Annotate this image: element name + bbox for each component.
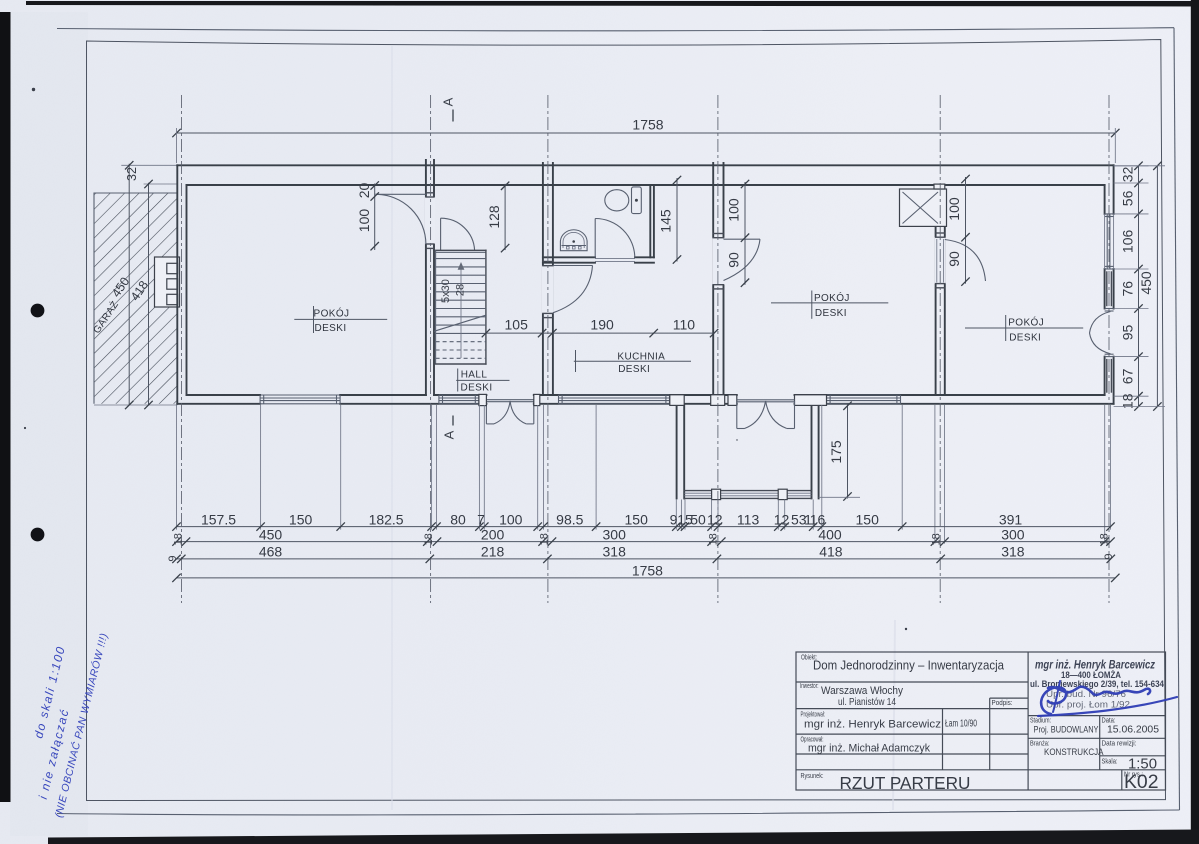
svg-text:5x30: 5x30 <box>440 279 452 303</box>
svg-text:mgr inż. Michał Adamczyk: mgr inż. Michał Adamczyk <box>808 743 930 755</box>
svg-text:50: 50 <box>690 511 706 527</box>
svg-text:Rysunek:: Rysunek: <box>801 771 824 780</box>
svg-text:28: 28 <box>455 284 467 296</box>
svg-text:POKÓJ: POKÓJ <box>814 291 850 304</box>
svg-text:12: 12 <box>707 511 723 527</box>
svg-text:DESKI: DESKI <box>314 323 346 334</box>
svg-text:12: 12 <box>774 511 790 527</box>
svg-text:Inwestor:: Inwestor: <box>800 681 819 690</box>
svg-text:90: 90 <box>726 252 742 268</box>
svg-text:100: 100 <box>726 198 742 222</box>
svg-text:1758: 1758 <box>632 117 663 133</box>
svg-text:9: 9 <box>1103 553 1115 559</box>
svg-text:200: 200 <box>481 526 505 542</box>
svg-text:400: 400 <box>818 526 842 542</box>
svg-text:32: 32 <box>125 167 139 181</box>
svg-text:150: 150 <box>856 511 880 527</box>
svg-text:Skala:: Skala: <box>1102 757 1118 766</box>
svg-text:18: 18 <box>538 533 550 545</box>
svg-text:67: 67 <box>1119 368 1135 384</box>
svg-text:300: 300 <box>603 526 627 542</box>
svg-text:A: A <box>442 430 457 439</box>
svg-text:450: 450 <box>1138 271 1154 295</box>
svg-text:150: 150 <box>625 511 649 527</box>
svg-text:DESKI: DESKI <box>815 308 847 319</box>
svg-text:RZUT PARTERU: RZUT PARTERU <box>840 773 971 793</box>
svg-text:DESKI: DESKI <box>460 383 492 394</box>
svg-text:KONSTRUKCJA: KONSTRUKCJA <box>1044 747 1104 758</box>
svg-text:Dom Jednorodzinny – Inwentaryz: Dom Jednorodzinny – Inwentaryzacja <box>813 658 1005 673</box>
svg-text:100: 100 <box>356 209 372 233</box>
svg-text:106: 106 <box>1119 230 1135 254</box>
svg-text:Proj. BUDOWLANY: Proj. BUDOWLANY <box>1034 725 1100 736</box>
svg-text:7: 7 <box>477 511 485 527</box>
svg-text:DESKI: DESKI <box>1009 333 1041 344</box>
svg-text:K02: K02 <box>1124 772 1159 793</box>
svg-text:113: 113 <box>737 511 760 527</box>
svg-text:218: 218 <box>481 544 505 560</box>
svg-text:Data rewizji:: Data rewizji: <box>1102 738 1137 747</box>
svg-text:18: 18 <box>172 533 184 545</box>
svg-text:18: 18 <box>707 533 719 545</box>
svg-text:318: 318 <box>1001 544 1025 560</box>
svg-text:100: 100 <box>499 511 523 527</box>
svg-text:391: 391 <box>999 511 1023 527</box>
svg-text:80: 80 <box>450 511 466 527</box>
svg-text:POKÓJ: POKÓJ <box>1008 315 1044 328</box>
svg-text:145: 145 <box>658 209 674 233</box>
svg-text:POKÓJ: POKÓJ <box>314 307 350 320</box>
svg-text:98.5: 98.5 <box>556 511 583 527</box>
svg-text:95: 95 <box>1119 325 1135 341</box>
svg-text:HALL: HALL <box>461 369 488 380</box>
svg-text:Łam 10/90: Łam 10/90 <box>945 719 977 730</box>
svg-text:175: 175 <box>828 440 844 464</box>
svg-text:157.5: 157.5 <box>201 511 236 527</box>
svg-text:468: 468 <box>259 544 283 560</box>
svg-text:105: 105 <box>505 316 529 332</box>
svg-text:318: 318 <box>603 544 627 560</box>
svg-text:76: 76 <box>1119 281 1135 297</box>
svg-text:16: 16 <box>810 511 826 527</box>
svg-text:A: A <box>441 97 456 106</box>
svg-text:20: 20 <box>356 183 372 199</box>
svg-text:18: 18 <box>423 533 435 545</box>
svg-text:418: 418 <box>819 544 843 560</box>
svg-text:190: 190 <box>590 316 614 332</box>
svg-text:18: 18 <box>1099 533 1111 545</box>
svg-text:Podpis:: Podpis: <box>992 698 1013 707</box>
svg-text:90: 90 <box>946 251 962 267</box>
svg-text:ul. Pianistów 14: ul. Pianistów 14 <box>838 696 896 708</box>
svg-text:450: 450 <box>259 526 283 542</box>
svg-text:128: 128 <box>486 205 502 229</box>
svg-text:DESKI: DESKI <box>618 364 650 375</box>
svg-text:182.5: 182.5 <box>369 511 404 527</box>
svg-text:Projektował:: Projektował: <box>801 709 826 718</box>
svg-text:110: 110 <box>673 316 696 332</box>
svg-text:18: 18 <box>931 533 943 545</box>
svg-text:32: 32 <box>1119 166 1135 182</box>
svg-text:9: 9 <box>167 555 179 561</box>
svg-text:mgr inż. Henryk Barcewicz: mgr inż. Henryk Barcewicz <box>804 719 941 731</box>
svg-text:1758: 1758 <box>632 563 663 579</box>
svg-text:150: 150 <box>289 511 313 527</box>
svg-text:56: 56 <box>1119 190 1135 206</box>
svg-text:100: 100 <box>946 197 962 221</box>
svg-text:300: 300 <box>1001 526 1025 542</box>
svg-text:15.06.2005: 15.06.2005 <box>1107 724 1159 736</box>
